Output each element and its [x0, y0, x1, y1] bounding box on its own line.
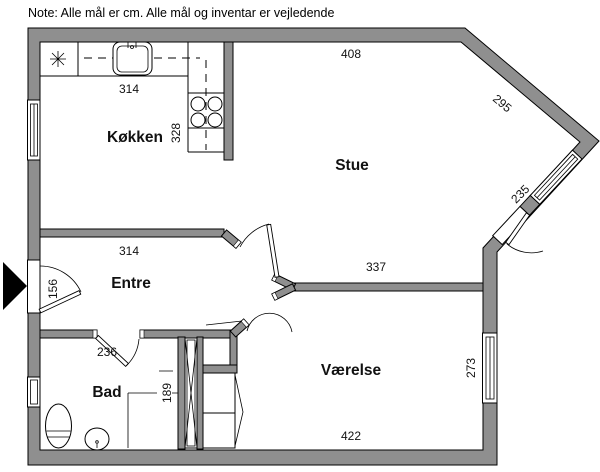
entrance-arrow	[3, 262, 27, 310]
bathroom-fixtures	[46, 371, 179, 450]
wardrobe-door-lines	[235, 375, 243, 446]
dim-bedroom-width: 422	[341, 429, 361, 443]
note-text: Note: Alle mål er cm. Alle mål og invent…	[28, 6, 334, 20]
closet-mid-wall	[203, 365, 237, 373]
bad-right-wall	[178, 337, 185, 449]
wardrobe-shelf-upper	[203, 373, 235, 413]
bad-window	[28, 377, 41, 407]
closet-top-box	[203, 338, 230, 365]
vent-shaft	[185, 338, 197, 448]
dim-hall-width: 314	[119, 244, 139, 258]
bad-top-wall-right	[140, 330, 237, 338]
entre-stue-door	[240, 224, 279, 277]
entre-top-wall	[40, 229, 224, 237]
shaft-right-wall	[197, 337, 203, 449]
cooktop-star-icon	[50, 51, 66, 67]
dim-kitchen-depth: 328	[169, 123, 183, 143]
floor-plan: Note: Alle mål er cm. Alle mål og invent…	[0, 0, 600, 472]
floor-plan-page: Note: Alle mål er cm. Alle mål og invent…	[0, 0, 600, 472]
wardrobe-shelf-lower	[203, 413, 235, 448]
entre-vaerelse-door	[206, 313, 292, 332]
dim-upper-diagonal: 295	[490, 92, 515, 116]
bad-top-wall-left	[40, 330, 97, 338]
kitchen-sink	[113, 42, 152, 75]
stue-diagonal-window	[493, 150, 582, 244]
vaerelse-window	[483, 333, 498, 403]
shower-niche-lines	[128, 371, 178, 448]
room-label-bath: Bad	[92, 384, 121, 401]
dim-top-wall: 408	[341, 47, 361, 61]
room-label-bedroom: Værelse	[321, 362, 382, 379]
kitchen-window	[28, 100, 41, 160]
stue-vaerelse-wall	[292, 283, 483, 291]
washbasin-icon	[85, 428, 109, 450]
dim-bath-niche: 189	[160, 383, 174, 403]
room-label-living: Stue	[335, 157, 369, 174]
room-label-hall: Entre	[111, 275, 151, 292]
room-label-kitchen: Køkken	[107, 129, 163, 146]
dim-bath-width: 236	[97, 345, 117, 359]
dim-bedroom-depth: 273	[464, 358, 478, 378]
dim-stue-vaerelse-wall: 337	[366, 260, 386, 274]
dim-kitchen-width: 314	[119, 82, 139, 96]
kitchen-stue-wall	[224, 42, 233, 160]
double-door-junction	[272, 274, 296, 300]
windows	[28, 100, 583, 407]
entre-wall-door-stub	[221, 230, 241, 248]
toilet-icon	[46, 404, 72, 448]
dim-entry-door: 156	[46, 279, 60, 299]
